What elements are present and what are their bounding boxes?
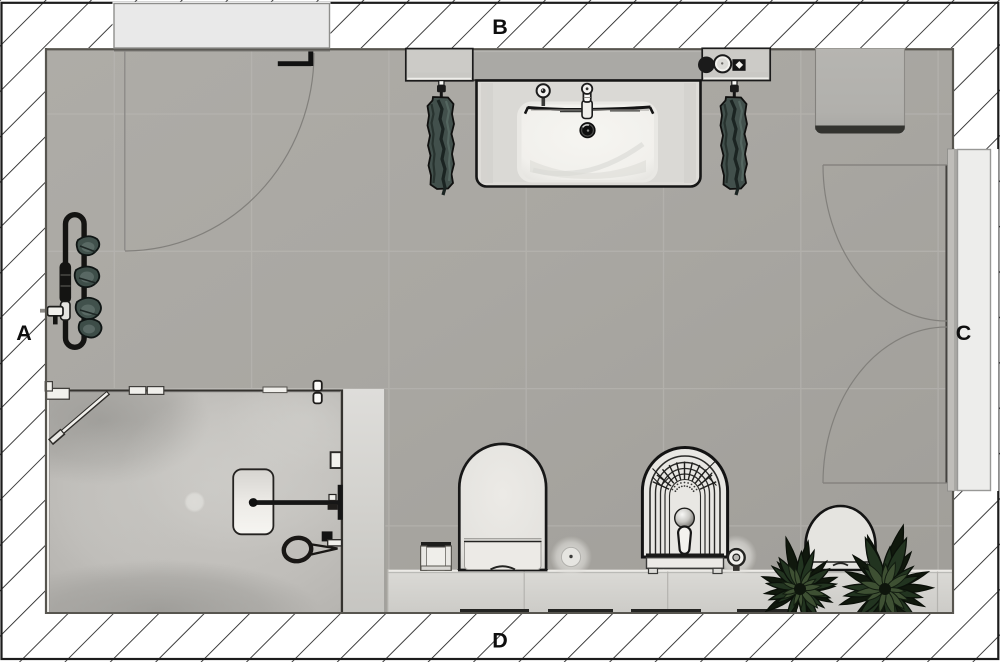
- svg-text:C: C: [956, 321, 972, 345]
- svg-text:D: D: [492, 629, 508, 653]
- svg-text:B: B: [492, 15, 508, 39]
- svg-text:A: A: [16, 321, 32, 345]
